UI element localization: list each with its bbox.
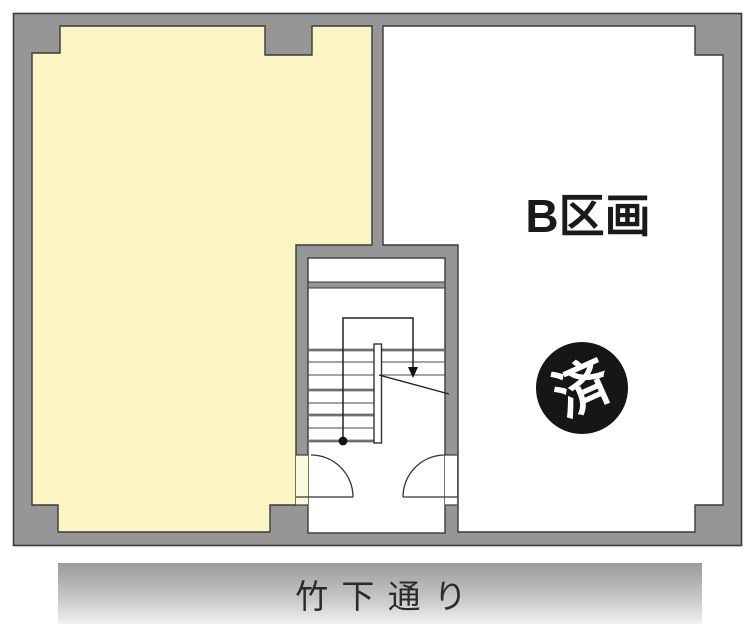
stairwell [296,258,457,533]
street-band: 竹 下 通 り [58,563,702,624]
floor-plan: B区画 済 竹 下 通 り [0,0,756,624]
street-name-label: 竹 下 通 り [295,578,469,615]
sold-badge: 済 [536,342,628,434]
unit-b-label: B区画 [525,190,650,242]
floor-plan-page: B区画 済 竹 下 通 り [0,0,756,624]
stair-landing-edge [308,282,445,288]
stair-center-rail [374,344,382,443]
